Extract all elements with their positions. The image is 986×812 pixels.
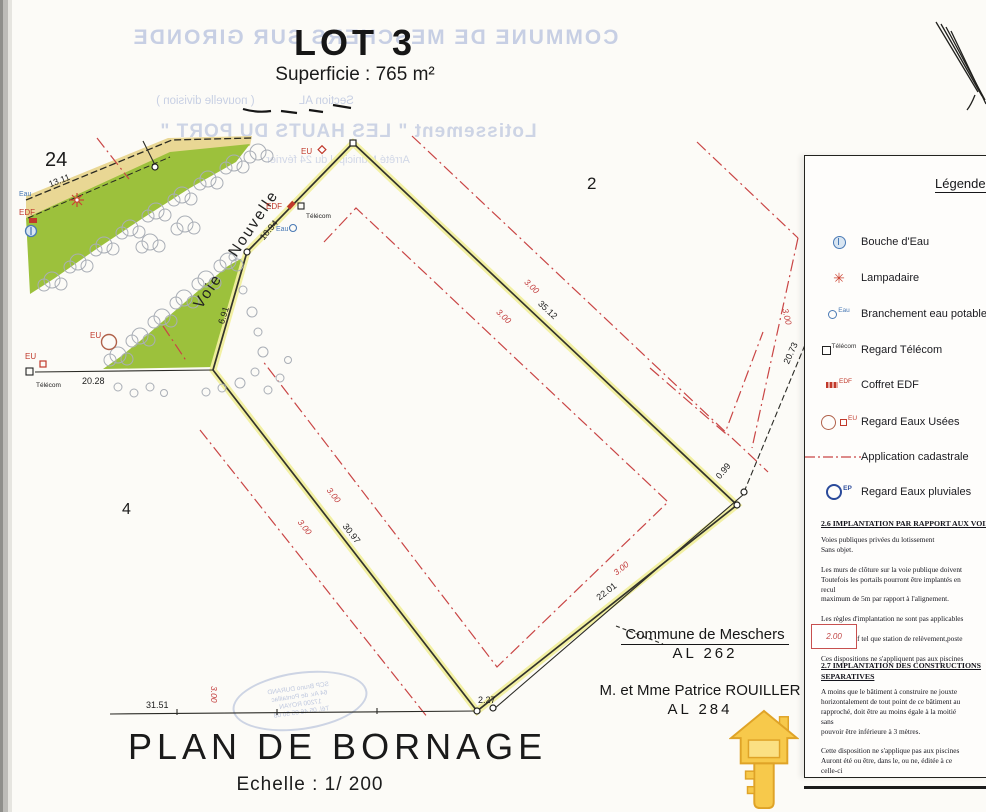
regard-eu-apex-icon xyxy=(318,146,326,154)
notes-section-2-7: 2.7 IMPLANTATION DES CONSTRUCTIONS SEPAR… xyxy=(821,660,986,778)
utility-eau-left-label: Eau xyxy=(19,191,32,198)
regard-telecom-left-icon xyxy=(26,368,33,375)
regard-telecom-icon: Télécom xyxy=(817,346,861,355)
ink-smudge xyxy=(243,105,351,113)
cadastral-line-icon xyxy=(805,455,861,459)
commune-ref: AL 262 xyxy=(610,645,800,662)
offset-label-bottom: 3.00 xyxy=(209,686,219,703)
offset-label-ne-outer: 3.00 xyxy=(522,277,541,296)
legend-item-application-cadastrale: Application cadastrale xyxy=(805,447,969,467)
legend-item-lampadaire: ✳ Lampadaire xyxy=(817,268,919,288)
coffret-edf-left-icon xyxy=(29,218,37,223)
footer-title: PLAN DE BORNAGE xyxy=(128,726,547,768)
bouche-eau-icon xyxy=(817,236,861,249)
utility-eu-square-label: EU xyxy=(25,352,36,361)
dim-0-99: 0.99 xyxy=(714,461,733,481)
offset-label-ne-inner: 3.00 xyxy=(494,307,513,326)
utility-eau-label: Eau xyxy=(276,226,289,233)
utility-eu-apex-label: EU xyxy=(301,147,312,156)
regard-eu-square-icon xyxy=(40,361,46,367)
branchement-eau-icon xyxy=(290,225,297,232)
utility-edf-left-label: EDF xyxy=(19,208,35,217)
legend-item-regard-telecom: Télécom Regard Télécom xyxy=(817,340,942,360)
offset-label-w-inner: 3.00 xyxy=(325,485,343,504)
lampadaire-icon xyxy=(70,193,84,207)
page-title: LOT 3 xyxy=(240,22,470,64)
coffret-edf-icon: EDF xyxy=(817,382,861,389)
legend-panel: Légende Bouche d'Eau ✳ Lampadaire Eau Br… xyxy=(804,155,986,778)
legend-item-branchement-eau: Eau Branchement eau potable xyxy=(817,304,986,324)
regard-eu-circle-icon xyxy=(102,335,117,350)
commune-name: Commune de Meschers xyxy=(621,626,788,645)
utility-edf-label: EDF xyxy=(266,202,282,211)
branchement-eau-icon: Eau xyxy=(817,310,861,319)
dim-20-73: 20.73 xyxy=(781,341,799,366)
legend-item-regard-eu: EU Regard Eaux Usées xyxy=(817,412,959,432)
bouche-eau-icon xyxy=(26,226,37,237)
parcel-label-4: 4 xyxy=(122,501,131,518)
parcel-label-2: 2 xyxy=(587,174,596,193)
regard-eu-icon: EU xyxy=(817,415,861,430)
notes-heading-2-7: 2.7 IMPLANTATION DES CONSTRUCTIONS xyxy=(821,660,986,671)
parcel-label-24: 24 xyxy=(45,149,67,171)
owner-name: M. et Mme Patrice ROUILLER xyxy=(600,682,801,699)
house-key-icon xyxy=(729,709,799,810)
legend-item-regard-ep: EP Regard Eaux pluviales xyxy=(817,482,971,502)
legend-title: Légende xyxy=(935,176,986,193)
dim-2-27: 2.27 xyxy=(478,695,496,705)
offset-label-se-inner: 3.00 xyxy=(611,559,630,577)
notes-heading-2-7b: SEPARATIVES xyxy=(821,671,986,682)
utility-telecom-label: Télécom xyxy=(306,213,331,220)
implantation-symbol: 2.00 xyxy=(811,624,857,649)
fold-mark xyxy=(936,22,986,110)
regard-ep-icon: EP xyxy=(817,484,861,500)
legend-item-coffret-edf: EDF Coffret EDF xyxy=(817,375,919,395)
legend-item-bouche-eau: Bouche d'Eau xyxy=(817,232,929,252)
dim-20-28: 20.28 xyxy=(82,376,105,386)
regard-telecom-icon xyxy=(298,203,304,209)
notes-body-2-7: A moins que le bâtiment à construire ne … xyxy=(821,687,986,778)
notes-heading-2-6: 2.6 IMPLANTATION PAR RAPPORT AUX VOIES xyxy=(821,518,986,529)
utility-eu-circle-label: EU xyxy=(90,331,101,340)
dim-31-51: 31.51 xyxy=(146,700,169,710)
commune-annotation: Commune de Meschers AL 262 xyxy=(610,626,800,662)
bottom-rule xyxy=(804,786,986,789)
offset-label-east: 3.00 xyxy=(780,307,794,326)
lampadaire-icon: ✳ xyxy=(817,270,861,287)
scanned-survey-page: COMMUNE DE MESCHERS SUR GIRONDE Section … xyxy=(0,0,986,812)
lot-area: Superficie : 765 m² xyxy=(210,64,500,86)
offset-label-w-outer: 3.00 xyxy=(296,517,314,536)
utility-telecom-left-label: Télécom xyxy=(36,382,61,389)
footer-scale: Echelle : 1/ 200 xyxy=(180,774,440,796)
